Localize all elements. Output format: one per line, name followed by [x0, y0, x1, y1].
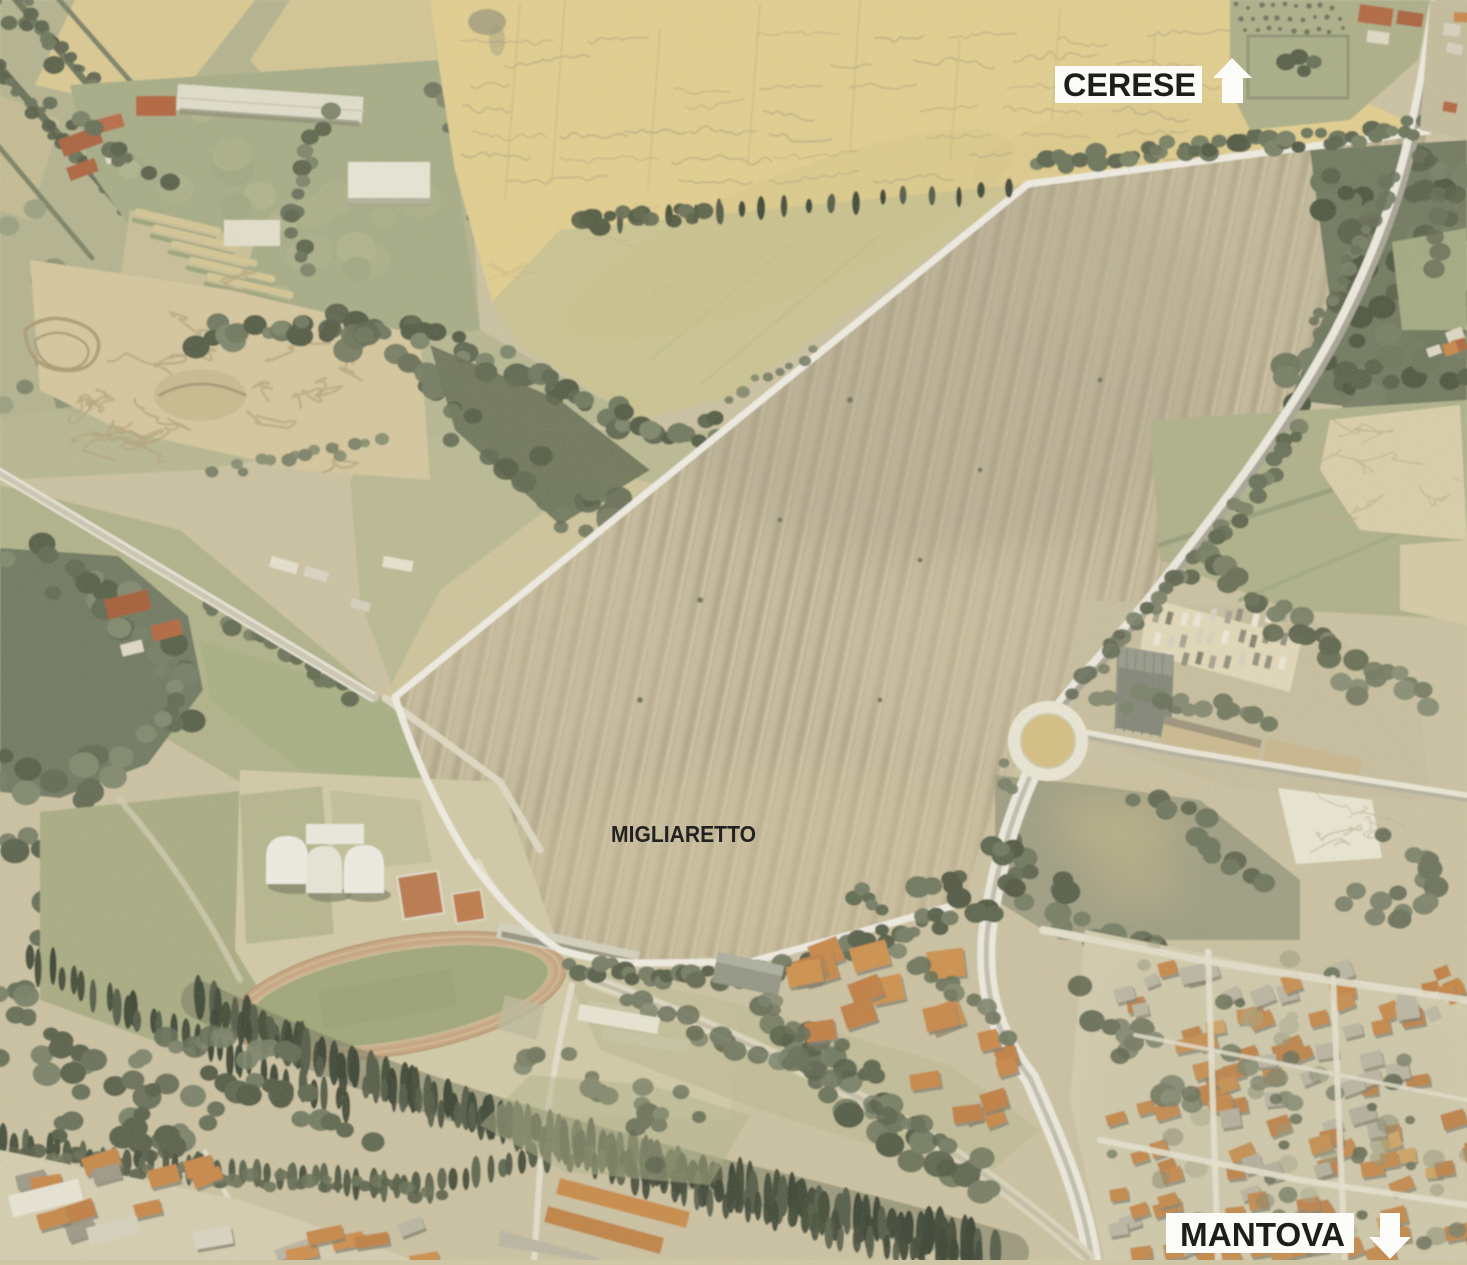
svg-text:CERESE: CERESE	[1063, 67, 1196, 103]
svg-text:MIGLIARETTO: MIGLIARETTO	[611, 821, 756, 847]
svg-text:MANTOVA: MANTOVA	[1180, 1216, 1345, 1253]
